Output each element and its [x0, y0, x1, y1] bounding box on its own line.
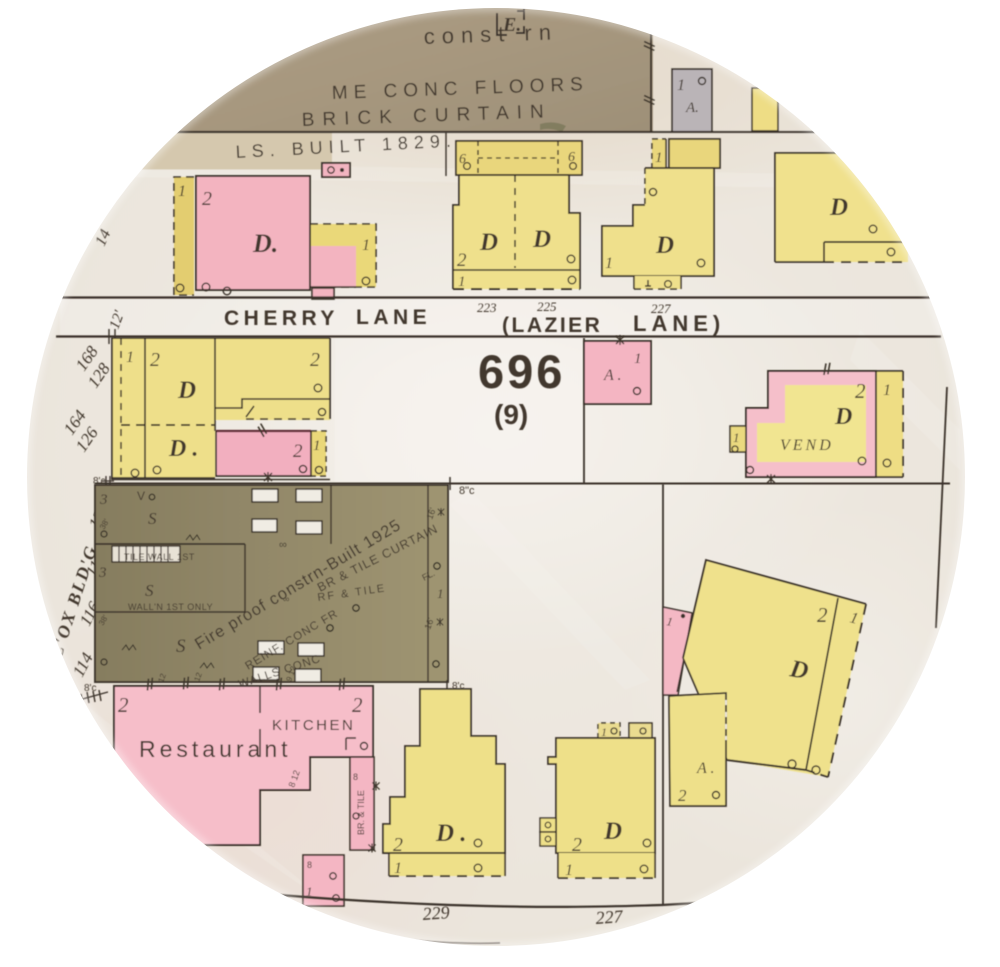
svg-text:D.: D.	[252, 229, 278, 258]
svg-text:2: 2	[457, 250, 467, 271]
svg-text:2: 2	[150, 349, 160, 371]
svg-text:1: 1	[126, 349, 134, 366]
svg-text:2: 2	[352, 693, 363, 717]
svg-text:2: 2	[202, 188, 212, 210]
svg-text:D: D	[834, 404, 852, 430]
svg-text:const rn: const rn	[423, 19, 558, 49]
svg-text:696: 696	[478, 345, 565, 398]
svg-text:D: D	[177, 377, 196, 404]
svg-text:2: 2	[572, 834, 582, 856]
svg-text:D: D	[603, 818, 622, 845]
svg-text:8: 8	[353, 772, 358, 782]
svg-text:(LAZIER: (LAZIER	[502, 314, 602, 337]
svg-text:8'c: 8'c	[84, 683, 96, 694]
svg-text:1: 1	[437, 586, 444, 601]
svg-text:CHERRY: CHERRY	[224, 307, 339, 330]
svg-text:223: 223	[477, 300, 497, 315]
svg-text:3: 3	[98, 565, 107, 581]
svg-text:2: 2	[310, 349, 320, 371]
svg-text:V: V	[137, 489, 145, 503]
svg-text:VEND: VEND	[780, 437, 834, 454]
svg-text:1: 1	[458, 274, 466, 290]
svg-text:1: 1	[178, 183, 186, 200]
svg-text:229: 229	[422, 902, 450, 924]
svg-text:A.: A.	[685, 100, 699, 116]
svg-text:1: 1	[655, 150, 663, 166]
svg-text:1: 1	[565, 862, 573, 879]
svg-text:S: S	[148, 509, 157, 528]
svg-text:1: 1	[634, 351, 642, 367]
svg-text:1: 1	[605, 255, 613, 272]
svg-text:1: 1	[601, 725, 607, 739]
svg-text:S: S	[176, 636, 186, 657]
svg-text:D .: D .	[168, 436, 198, 462]
svg-text:8"c: 8"c	[459, 485, 475, 497]
svg-text:D .: D .	[435, 820, 467, 847]
svg-text:LANE: LANE	[356, 306, 431, 329]
svg-text:6: 6	[459, 152, 466, 167]
svg-text:2: 2	[817, 603, 828, 627]
svg-text:D: D	[829, 194, 848, 221]
svg-text:A .: A .	[696, 760, 714, 777]
svg-text:227: 227	[595, 906, 624, 928]
svg-text:1: 1	[394, 860, 402, 877]
svg-text:KITCHEN: KITCHEN	[272, 717, 355, 734]
svg-text:∞: ∞	[279, 539, 287, 551]
svg-text:1: 1	[362, 237, 370, 254]
svg-text:1: 1	[313, 438, 321, 454]
svg-text:2: 2	[678, 786, 687, 805]
svg-text:8: 8	[307, 860, 312, 870]
svg-text:Restaurant: Restaurant	[139, 736, 292, 762]
svg-text:1: 1	[883, 382, 891, 399]
svg-text:D: D	[479, 229, 498, 256]
svg-text:WALL'N 1ST ONLY: WALL'N 1ST ONLY	[128, 602, 213, 612]
svg-text:D: D	[532, 226, 551, 253]
svg-text:(9): (9)	[494, 399, 528, 430]
svg-text:TILE WALL 1ST: TILE WALL 1ST	[124, 552, 195, 562]
svg-text:2: 2	[118, 693, 129, 717]
svg-text:BR. & TILE: BR. & TILE	[356, 790, 366, 835]
svg-text:2: 2	[393, 834, 403, 856]
svg-text:S: S	[145, 581, 154, 600]
svg-text:2: 2	[855, 379, 866, 403]
svg-text:LANE): LANE)	[633, 311, 725, 336]
svg-text:D: D	[655, 232, 674, 259]
svg-text:1: 1	[677, 77, 685, 94]
svg-text:1: 1	[733, 430, 740, 445]
svg-text:3: 3	[99, 492, 108, 508]
svg-text:2: 2	[293, 441, 303, 462]
svg-text:227: 227	[651, 301, 671, 316]
svg-text:225: 225	[537, 299, 557, 314]
svg-text:A .: A .	[603, 367, 621, 384]
